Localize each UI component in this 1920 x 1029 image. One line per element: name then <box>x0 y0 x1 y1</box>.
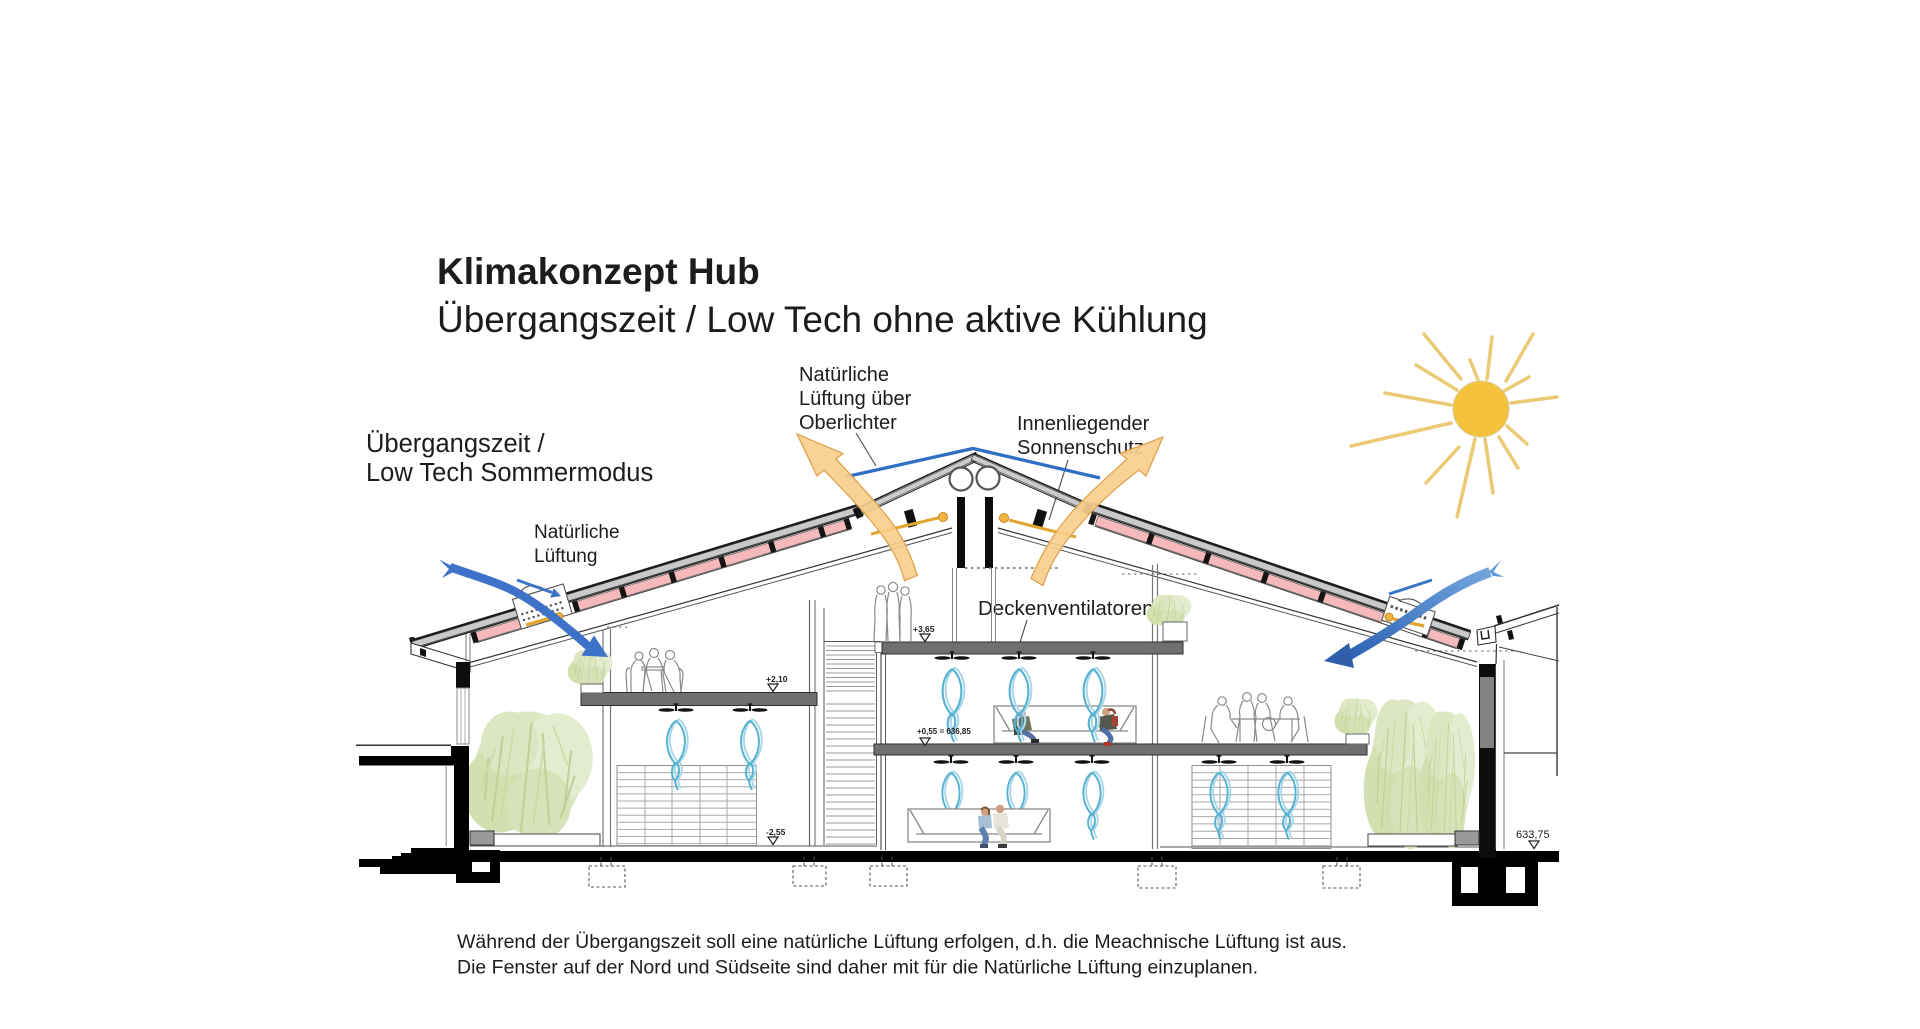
svg-text:Low Tech Sommermodus: Low Tech Sommermodus <box>366 459 653 487</box>
svg-text:Natürliche: Natürliche <box>799 364 889 386</box>
svg-text:Natürliche: Natürliche <box>534 522 620 543</box>
svg-text:Lüftung über: Lüftung über <box>799 388 912 410</box>
svg-text:Deckenventilatoren: Deckenventilatoren <box>978 597 1154 620</box>
svg-text:Innenliegender: Innenliegender <box>1017 413 1150 435</box>
svg-text:Klimakonzept Hub: Klimakonzept Hub <box>437 251 760 292</box>
svg-text:Lüftung: Lüftung <box>534 546 597 567</box>
svg-text:+3,65: +3,65 <box>913 624 935 634</box>
svg-text:Übergangszeit /: Übergangszeit / <box>366 430 546 458</box>
svg-text:Übergangszeit / Low Tech ohne: Übergangszeit / Low Tech ohne aktive Küh… <box>437 299 1208 340</box>
svg-text:Die Fenster auf der Nord und S: Die Fenster auf der Nord und Südseite si… <box>457 957 1258 979</box>
svg-text:-2,55: -2,55 <box>766 827 786 837</box>
svg-text:+2,10: +2,10 <box>766 674 788 684</box>
svg-text:Während der Übergangszeit soll: Während der Übergangszeit soll eine natü… <box>457 931 1347 953</box>
svg-text:+0,55 = 636,85: +0,55 = 636,85 <box>917 727 971 736</box>
svg-text:633,75: 633,75 <box>1516 829 1550 841</box>
svg-text:Oberlichter: Oberlichter <box>799 412 897 434</box>
